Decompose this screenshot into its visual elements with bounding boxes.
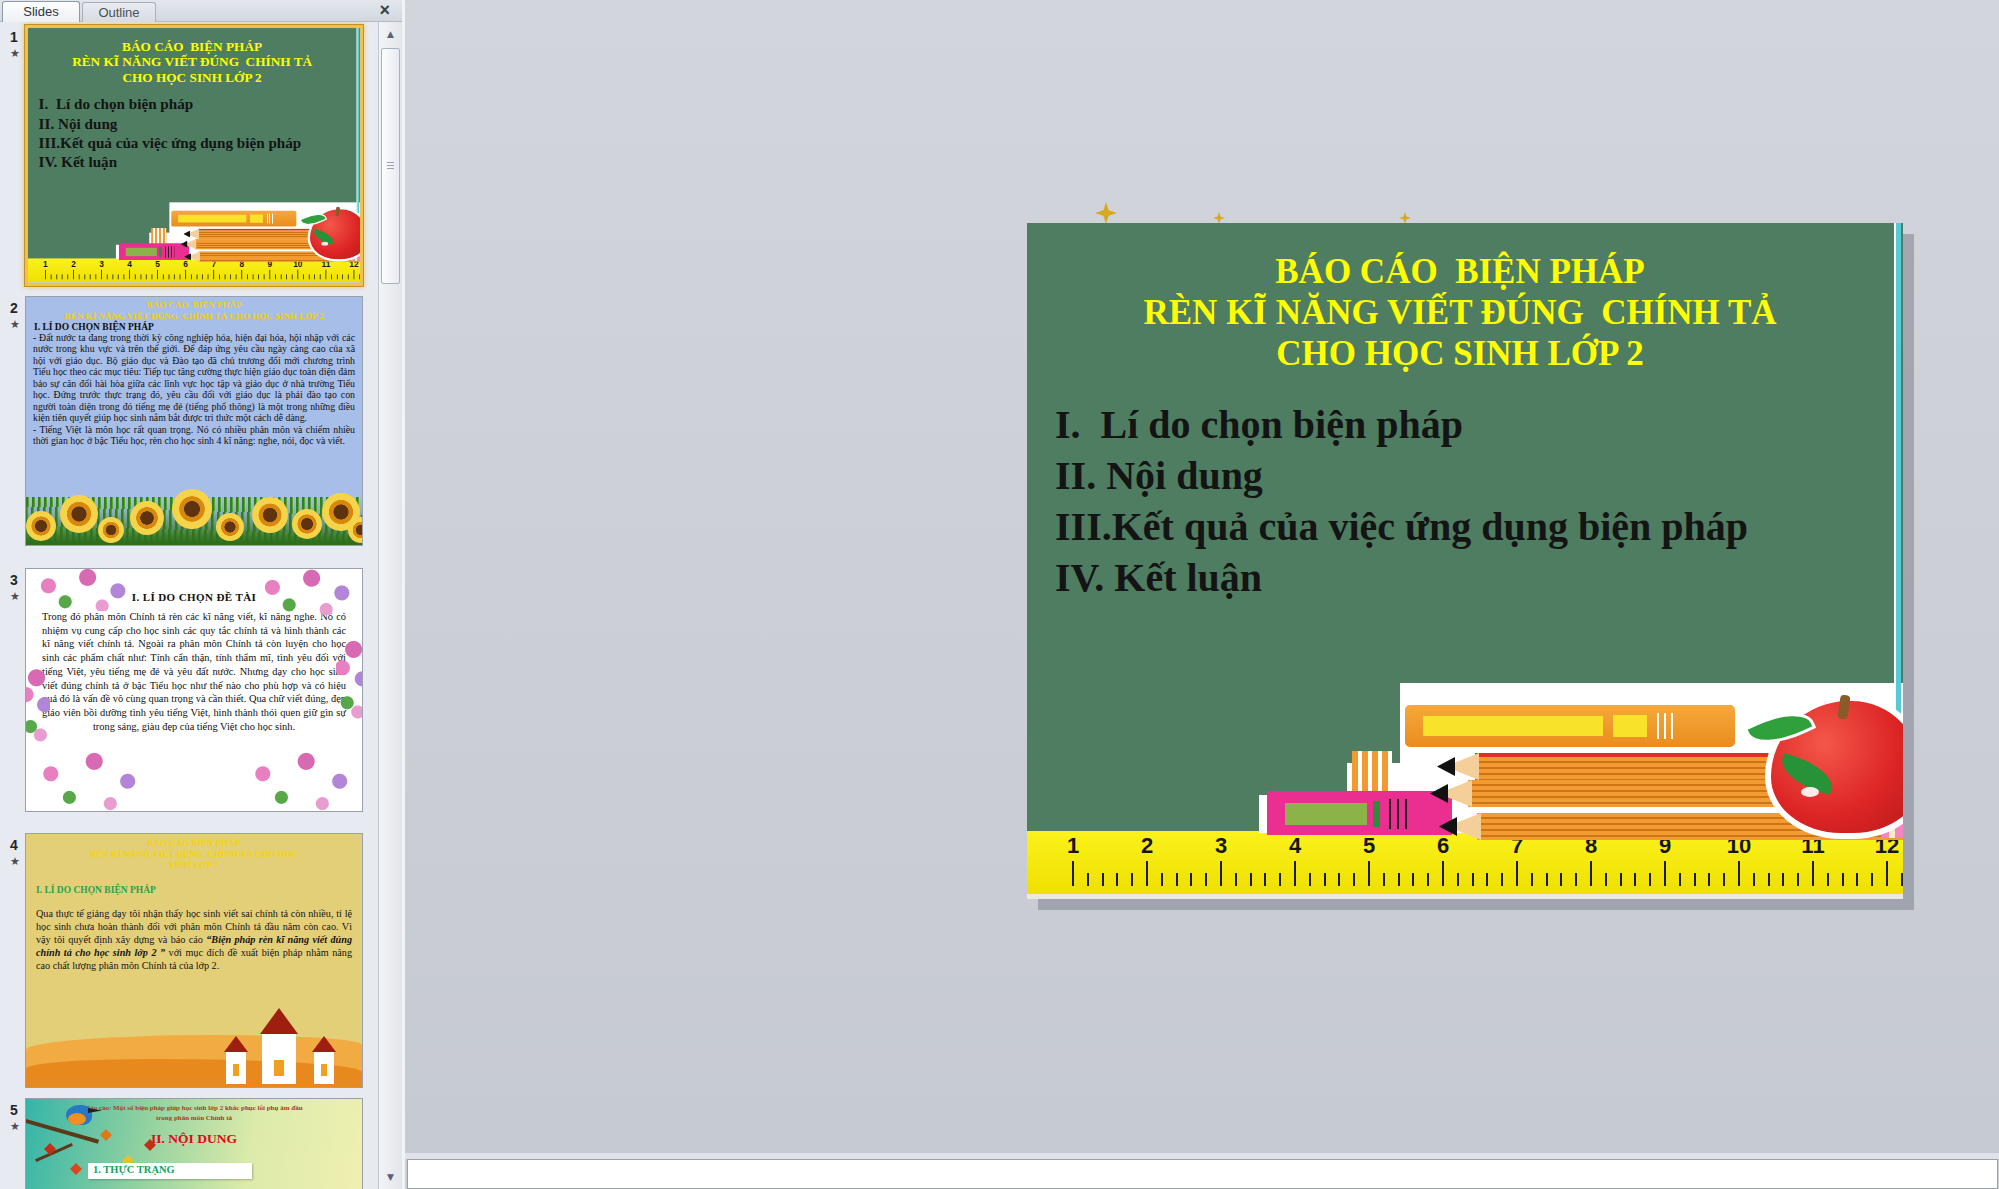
book-illustration: [1405, 705, 1735, 747]
animation-star-icon[interactable]: ★: [5, 47, 25, 60]
ruler-ticks: [1369, 861, 1443, 886]
ruler-cell: 4: [1295, 831, 1369, 894]
sunflower-icon: [130, 501, 164, 535]
ruler-ticks: [1517, 861, 1591, 886]
orange-wave-decoration: [26, 1059, 362, 1087]
ruler-ticks: [242, 270, 270, 279]
slide-title[interactable]: BÁO CÁO BIỆN PHÁP RÈN KĨ NĂNG VIẾT ĐÚNG …: [1027, 251, 1893, 374]
ruler-cell: 5: [1369, 831, 1443, 894]
slide-2-title-line1: BÁO CÁO BIỆN PHÁP: [26, 300, 362, 311]
slide-4-title-line1: BÁO CÁO BIỆN PHÁP: [26, 838, 362, 849]
book-lines: [1657, 713, 1675, 739]
sunflower-icon: [252, 497, 288, 533]
ruler-ticks: [1887, 861, 1903, 886]
eraser-pad: [1285, 803, 1367, 825]
slide-1-thumbnail[interactable]: BÁO CÁO BIỆN PHÁP RÈN KĨ NĂNG VIẾT ĐÚNG …: [25, 25, 363, 286]
ruler-cell: 8: [1591, 831, 1665, 894]
ruler-number: 1: [43, 259, 48, 269]
ruler-cell: 8: [242, 258, 270, 282]
apple-icon: [1749, 669, 1903, 843]
slide-2-title-line2: RÈN KĨ NĂNG VIẾT ĐÚNG CHÍNH TẢ CHO HỌC S…: [26, 311, 362, 322]
apple-icon: [302, 197, 360, 263]
ruler-cell: 1: [1073, 831, 1147, 894]
slide-1-thumbnail-content: BÁO CÁO BIỆN PHÁP RÈN KĨ NĂNG VIẾT ĐÚNG …: [28, 28, 360, 284]
ruler-cell: 2: [73, 258, 101, 282]
ruler-cell: 5: [158, 258, 186, 282]
eraser-bar: [159, 247, 162, 257]
ruler-ticks: [45, 270, 73, 279]
ruler-ticks: [1739, 861, 1813, 886]
slide-2-thumbnail[interactable]: BÁO CÁO BIỆN PHÁP RÈN KĨ NĂNG VIẾT ĐÚNG …: [25, 296, 363, 546]
slide-5-heading-box: 1. THỰC TRẠNG: [88, 1163, 252, 1179]
ruler-number: 4: [127, 259, 132, 269]
slide-2-number: 2: [4, 300, 24, 316]
ruler-ticks: [186, 270, 214, 279]
scroll-down-icon[interactable]: ▼: [380, 1167, 401, 1187]
slide-1-number: 1: [4, 29, 24, 45]
slide-1-design: BÁO CÁO BIỆN PHÁP RÈN KĨ NĂNG VIẾT ĐÚNG …: [28, 28, 360, 284]
ruler-cell: 7: [214, 258, 242, 282]
sunflower-icon: [26, 511, 56, 541]
bird-icon: [68, 1113, 86, 1125]
slide-2-paragraph-2: - Tiếng Việt là môn học rất quan trọng. …: [26, 424, 362, 447]
ruler-ticks: [1665, 861, 1739, 886]
sunflower-icon: [348, 517, 363, 543]
animation-star-icon[interactable]: ★: [5, 590, 25, 603]
slide-5-thumbnail[interactable]: Báo cáo: Một số biện pháp giúp học sinh …: [25, 1098, 363, 1189]
striped-block-illustration: [1352, 751, 1392, 793]
sunflower-icon: [292, 509, 322, 539]
sunflower-icon: [216, 513, 244, 541]
slide-editor-area: BÁO CÁO BIỆN PHÁP RÈN KĨ NĂNG VIẾT ĐÚNG …: [405, 0, 1999, 1153]
eraser-illustration: [1267, 791, 1452, 835]
close-panel-icon[interactable]: ×: [379, 0, 390, 20]
book-label: [1423, 716, 1603, 736]
slide-outline-list: I. Lí do chọn biện pháp II. Nội dung III…: [39, 95, 353, 172]
ruler-ticks: [1591, 861, 1665, 886]
ruler-ticks: [1221, 861, 1295, 886]
ruler-number: 3: [99, 259, 104, 269]
book-illustration: [171, 211, 296, 227]
main-slide-canvas[interactable]: BÁO CÁO BIỆN PHÁP RÈN KĨ NĂNG VIẾT ĐÚNG …: [1027, 223, 1903, 899]
slide-4-heading: I. LÍ DO CHỌN BIỆN PHÁP: [36, 885, 362, 895]
striped-block-illustration: [151, 228, 166, 244]
slide-3-body: Trong đó phân môn Chính tả rèn các kĩ nă…: [26, 610, 362, 734]
eraser-pad: [126, 248, 157, 256]
slides-panel-tabbar: Slides Outline ×: [0, 0, 402, 22]
slide-1-design: BÁO CÁO BIỆN PHÁP RÈN KĨ NĂNG VIẾT ĐÚNG …: [1027, 223, 1903, 899]
ruler-number: 4: [1289, 833, 1301, 859]
slide-2-paragraph-1: - Đất nước ta đang trong thời kỳ công ng…: [26, 332, 362, 424]
notes-pane[interactable]: [407, 1159, 1998, 1189]
eraser-illustration: [119, 243, 189, 260]
book-label-square: [1613, 715, 1647, 737]
ruler-ticks: [102, 270, 130, 279]
ruler-ticks: [298, 270, 326, 279]
ruler-number: 2: [71, 259, 76, 269]
scrollbar-thumb[interactable]: [381, 48, 400, 284]
eraser-lines: [1389, 799, 1413, 829]
book-lines: [267, 214, 274, 224]
eraser-bar: [1373, 801, 1380, 827]
book-label: [178, 215, 246, 223]
slides-panel-scrollbar[interactable]: ▲ ▼: [378, 22, 402, 1189]
maple-leaf-icon: [70, 1163, 82, 1175]
tab-slides[interactable]: Slides: [2, 1, 80, 22]
ruler-cell: 1: [45, 258, 73, 282]
ruler-cell: 7: [1517, 831, 1591, 894]
ruler-number: 2: [1141, 833, 1153, 859]
church-tower-icon: [314, 1052, 334, 1084]
ruler-cell: 3: [102, 258, 130, 282]
flower-corner-decoration: [238, 749, 362, 811]
ruler-cell: 2: [1147, 831, 1221, 894]
slide-2-heading: I. LÍ DO CHỌN BIỆN PHÁP: [34, 322, 362, 332]
animation-star-icon[interactable]: ★: [5, 855, 25, 868]
sunflower-icon: [60, 495, 98, 533]
ruler-ticks: [326, 270, 354, 279]
slide-3-thumbnail[interactable]: I. LÍ DO CHỌN ĐỀ TÀI Trong đó phân môn C…: [25, 568, 363, 812]
flower-corner-decoration: [26, 749, 150, 811]
ruler-number: 1: [1067, 833, 1079, 859]
tab-outline-label: Outline: [98, 5, 139, 20]
sparkle-icon: [1095, 202, 1117, 224]
flower-side-decoration: [25, 661, 50, 745]
ruler-ticks: [158, 270, 186, 279]
flower-corner-decoration: [26, 569, 138, 611]
flower-corner-decoration: [250, 569, 362, 615]
slide-4-body: Qua thực tế giảng dạy tôi nhận thấy học …: [26, 907, 362, 972]
ruler-cell: 6: [1443, 831, 1517, 894]
ruler-cell: 3: [1221, 831, 1295, 894]
sunflower-grass-strip: [26, 497, 362, 545]
tab-slides-label: Slides: [23, 4, 58, 19]
ruler-ticks: [1073, 861, 1147, 886]
ruler-cell: 4: [130, 258, 158, 282]
ruler-ticks: [1813, 861, 1887, 886]
ruler-number: 5: [155, 259, 160, 269]
animation-star-icon[interactable]: ★: [5, 318, 25, 331]
eraser-lines: [165, 246, 174, 257]
powerpoint-window: Slides Outline × 1 ★ BÁO CÁO BIỆN PHÁP R…: [0, 0, 1999, 1189]
slide-4-title-line2: RÈN KĨ NĂNG VIẾT ĐÚNG CHÍNH TẢ CHO HỌC: [26, 849, 362, 860]
slide-title: BÁO CÁO BIỆN PHÁP RÈN KĨ NĂNG VIẾT ĐÚNG …: [28, 39, 356, 86]
animation-star-icon[interactable]: ★: [5, 1120, 25, 1133]
slide-thumbnail-list: 1 ★ BÁO CÁO BIỆN PHÁP RÈN KĨ NĂNG VIẾT Đ…: [0, 22, 378, 1189]
ruler-ticks: [354, 270, 360, 279]
scroll-up-icon[interactable]: ▲: [380, 24, 401, 44]
church-tower-icon: [262, 1034, 296, 1084]
ruler-ticks: [130, 270, 158, 279]
ruler-ticks: [1443, 861, 1517, 886]
slides-panel: Slides Outline × 1 ★ BÁO CÁO BIỆN PHÁP R…: [0, 0, 402, 1189]
slide-4-thumbnail[interactable]: BÁO CÁO BIỆN PHÁP RÈN KĨ NĂNG VIẾT ĐÚNG …: [25, 833, 363, 1088]
ruler-ticks: [1295, 861, 1369, 886]
ruler-ticks: [73, 270, 101, 279]
sunflower-icon: [172, 489, 212, 529]
ruler-ticks: [270, 270, 298, 279]
slide-5-heading: 1. THỰC TRẠNG: [88, 1163, 252, 1176]
ruler-number: 3: [1215, 833, 1227, 859]
slide-outline-list[interactable]: I. Lí do chọn biện pháp II. Nội dung III…: [1055, 399, 1883, 603]
slide-3-number: 3: [4, 572, 24, 588]
ruler-cell: 6: [186, 258, 214, 282]
ruler-ticks: [1147, 861, 1221, 886]
ruler-ticks: [214, 270, 242, 279]
slide-4-number: 4: [4, 837, 24, 853]
slide-5-number: 5: [4, 1102, 24, 1118]
sunflower-icon: [98, 517, 124, 543]
tab-outline[interactable]: Outline: [82, 2, 156, 22]
ruler-number: 5: [1363, 833, 1375, 859]
slide-4-title-line3: SINH LỚP 2: [26, 860, 362, 871]
flower-side-decoration: [336, 631, 363, 723]
book-label-square: [250, 214, 263, 222]
church-tower-icon: [226, 1052, 246, 1084]
